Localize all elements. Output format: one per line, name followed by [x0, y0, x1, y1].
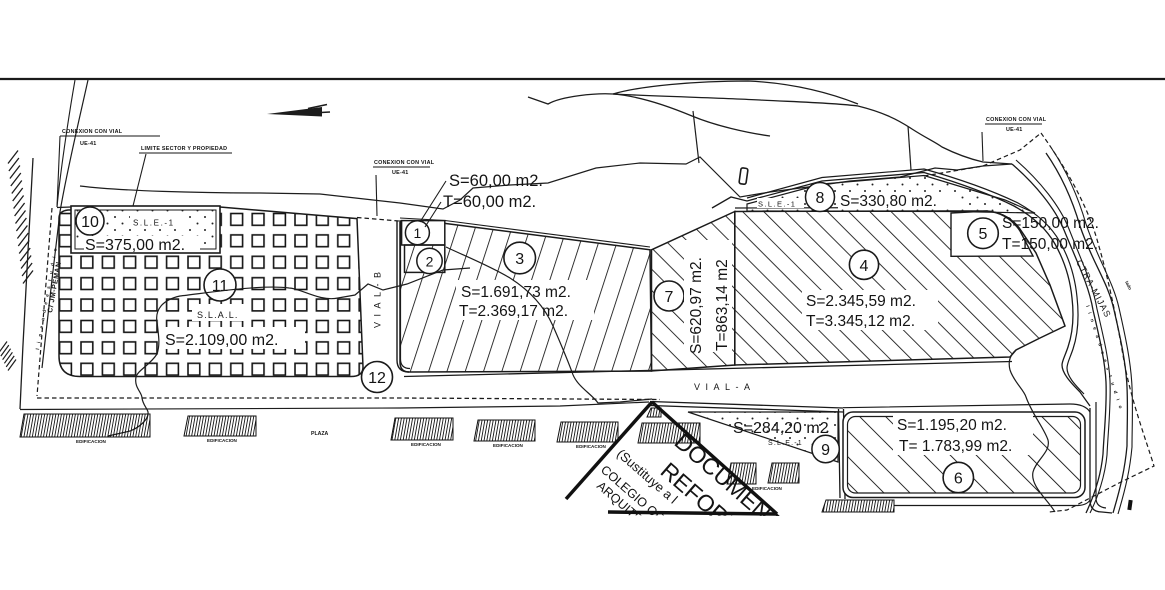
svg-text:EDIFICACION: EDIFICACION [411, 442, 442, 447]
svg-text:6: 6 [954, 471, 963, 488]
svg-text:UE-41: UE-41 [1006, 127, 1023, 133]
svg-text:9: 9 [821, 442, 830, 459]
svg-text:S=330,80 m2.: S=330,80 m2. [840, 193, 937, 210]
svg-text:EDIFICACION: EDIFICACION [207, 438, 238, 443]
svg-text:UE-41: UE-41 [392, 170, 409, 176]
svg-text:3: 3 [515, 251, 524, 268]
svg-text:2: 2 [426, 254, 434, 270]
svg-text:S=60,00 m2.: S=60,00 m2. [449, 172, 543, 190]
svg-text:10: 10 [81, 214, 99, 231]
svg-text:S.L.E.-1: S.L.E.-1 [758, 200, 796, 209]
svg-text:VIAL-A: VIAL-A [694, 382, 756, 392]
svg-text:S=2.109,00 m2.: S=2.109,00 m2. [165, 332, 278, 349]
svg-text:T=3.345,12 m2.: T=3.345,12 m2. [806, 313, 915, 330]
svg-text:CONEXION CON VIAL: CONEXION CON VIAL [374, 160, 435, 166]
svg-text:S=1.195,20 m2.: S=1.195,20 m2. [897, 417, 1007, 434]
svg-text:EDIFICACION: EDIFICACION [752, 486, 783, 491]
svg-text:5: 5 [979, 226, 988, 243]
svg-text:S=375,00 m2.: S=375,00 m2. [85, 237, 185, 254]
svg-text:7: 7 [665, 289, 674, 306]
svg-text:PLAZA: PLAZA [311, 431, 329, 437]
svg-text:12: 12 [368, 370, 386, 387]
svg-text:T=150,00 m2.: T=150,00 m2. [1002, 236, 1098, 253]
svg-text:1: 1 [414, 225, 422, 241]
svg-text:CONEXION CON VIAL: CONEXION CON VIAL [62, 129, 123, 135]
svg-text:S.L.E.-1: S.L.E.-1 [133, 219, 175, 228]
svg-text:EDIFICACION: EDIFICACION [493, 443, 524, 448]
svg-text:S=2.345,59 m2.: S=2.345,59 m2. [806, 293, 916, 310]
svg-text:S.L.A.L.: S.L.A.L. [197, 310, 239, 320]
svg-text:UE-41: UE-41 [80, 141, 97, 147]
svg-text:S=284,20 m2: S=284,20 m2 [733, 420, 829, 437]
svg-text:VIAL-B: VIAL-B [373, 266, 383, 328]
svg-text:11: 11 [212, 278, 229, 295]
svg-text:LIMITE SECTOR Y PROPIEDAD: LIMITE SECTOR Y PROPIEDAD [141, 146, 227, 152]
svg-text:T=60,00 m2.: T=60,00 m2. [443, 193, 536, 211]
svg-text:4: 4 [860, 258, 869, 275]
svg-text:T=2.369,17 m2.: T=2.369,17 m2. [459, 303, 568, 320]
svg-text:EDIFICACION: EDIFICACION [76, 439, 107, 444]
svg-text:T=863,14 m2: T=863,14 m2 [714, 259, 731, 351]
svg-text:S.L.E.-1: S.L.E.-1 [768, 440, 803, 447]
svg-text:T= 1.783,99 m2.: T= 1.783,99 m2. [899, 438, 1012, 455]
svg-text:S=1.691,73 m2.: S=1.691,73 m2. [461, 284, 571, 301]
svg-text:S=620,97 m2.: S=620,97 m2. [688, 257, 705, 354]
svg-text:CONEXION CON VIAL: CONEXION CON VIAL [986, 117, 1047, 123]
svg-text:8: 8 [816, 190, 825, 207]
svg-text:EDIFICACION: EDIFICACION [576, 444, 607, 449]
